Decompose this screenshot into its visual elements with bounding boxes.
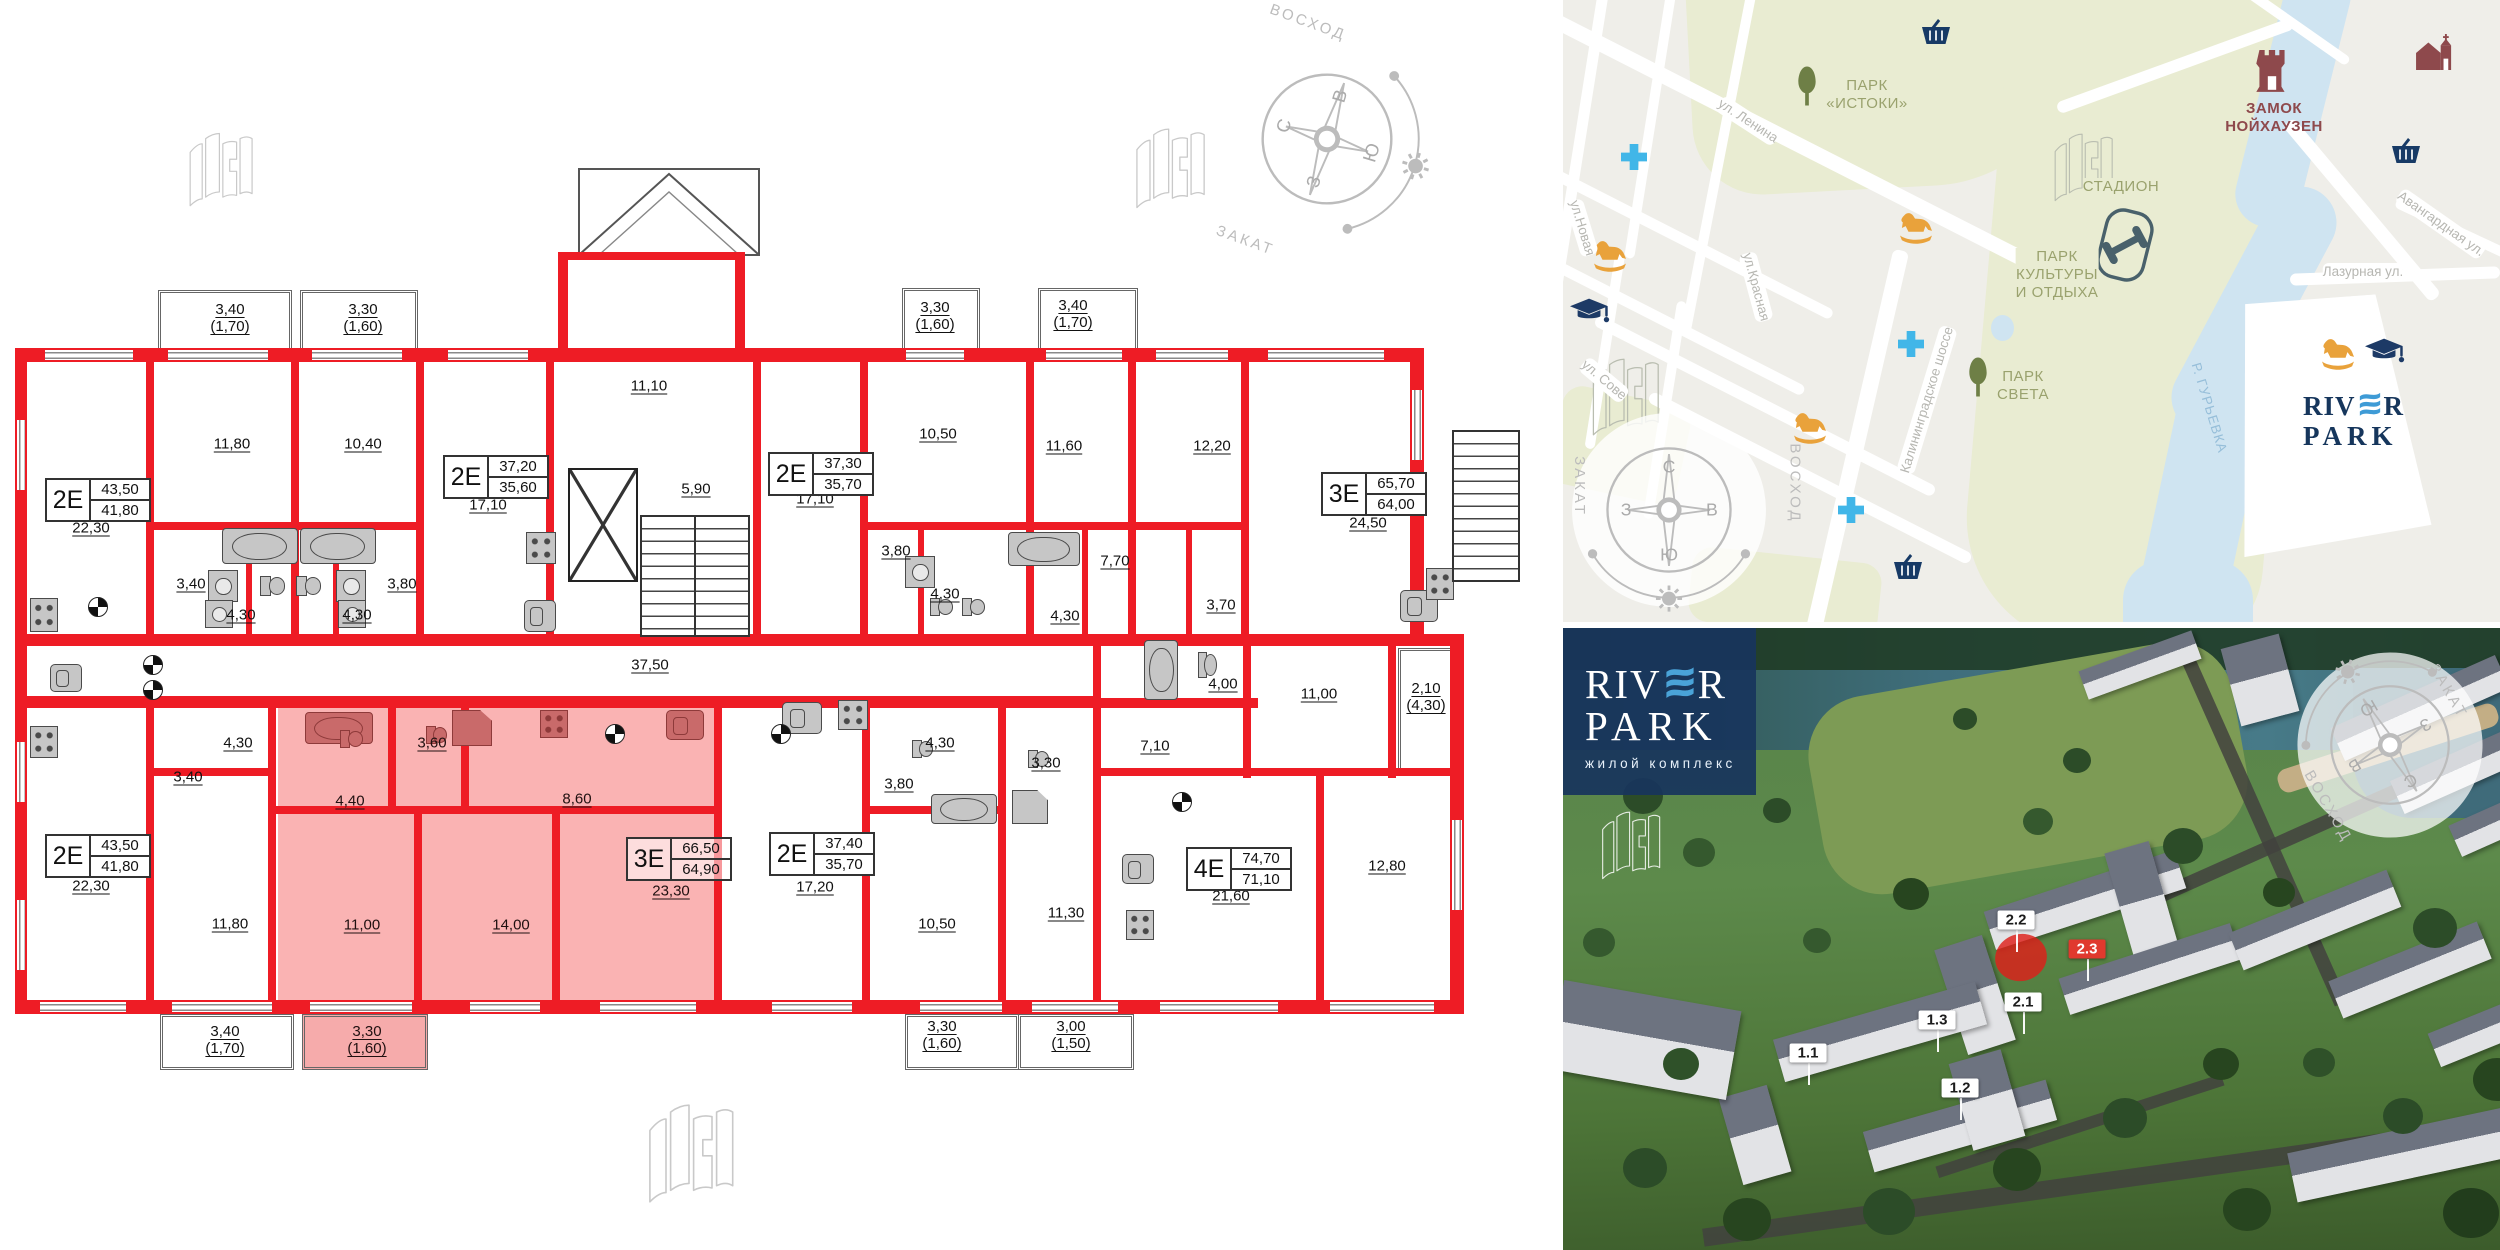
- label-leader-line: [2087, 959, 2089, 981]
- wall-segment: [1243, 644, 1251, 778]
- wall-segment: [860, 348, 868, 646]
- bathtub-basin: [940, 798, 988, 820]
- building-number-label[interactable]: 1.3: [1919, 1011, 1956, 1030]
- apartment-building: [2428, 989, 2500, 1067]
- wall-segment: [753, 348, 761, 646]
- entrance-canopy: [578, 168, 760, 256]
- apartment-type: 2Е: [770, 454, 814, 494]
- toilet-icon: [962, 598, 984, 614]
- map-label: Лазурная ул.: [2323, 263, 2403, 281]
- tree: [2473, 1058, 2500, 1101]
- toilet-bowl: [1204, 654, 1217, 676]
- toilet-icon: [296, 576, 320, 594]
- basin: [673, 717, 687, 735]
- room-area-label: 10,40: [344, 436, 382, 453]
- window: [40, 1002, 126, 1012]
- toilet-bowl: [970, 599, 985, 614]
- window: [1452, 820, 1462, 910]
- room-area-label: 11,00: [344, 917, 380, 934]
- room-area-label: 7,10: [1140, 738, 1169, 755]
- stove-icon: [1126, 910, 1154, 940]
- building-number-label[interactable]: 2.1: [2005, 993, 2042, 1012]
- stadium-icon: [2098, 207, 2152, 283]
- wall-segment: [414, 814, 422, 1008]
- room-area-label: 24,50: [1349, 515, 1387, 532]
- map-label: ЗАМОК НОЙХАУЗЕН: [2225, 100, 2323, 136]
- window: [312, 350, 402, 360]
- school-cap-icon: [2365, 338, 2405, 366]
- room-area-label: 4,30: [223, 735, 252, 752]
- building-outline-sketch: [185, 108, 271, 214]
- shop-basket-icon: [1921, 18, 1951, 46]
- church-icon: [2413, 34, 2457, 70]
- room-area-label: 4,30: [226, 607, 255, 624]
- window: [1160, 1002, 1278, 1012]
- wall-segment: [1388, 644, 1396, 778]
- vent-shaft-icon: [1172, 792, 1192, 812]
- room-area-label: 11,80: [214, 436, 250, 453]
- kitchen-sink-icon: [666, 710, 704, 740]
- building-number-label[interactable]: 2.2: [1998, 911, 2035, 930]
- sink-icon: [336, 570, 366, 602]
- medical-cross-icon: [1838, 497, 1864, 523]
- staircase-icon: [640, 515, 696, 637]
- wall-segment: [388, 708, 396, 814]
- tree-icon: [1965, 357, 1991, 397]
- basin: [56, 670, 68, 687]
- window: [448, 350, 528, 360]
- kitchen-sink-icon: [50, 664, 82, 692]
- bathtub-icon: [222, 528, 298, 564]
- tree: [1763, 798, 1791, 823]
- tree: [1893, 878, 1929, 910]
- apartment-total-area: 74,70: [1232, 849, 1290, 870]
- apartment-total-area: 43,50: [91, 836, 149, 857]
- tree: [2263, 878, 2295, 907]
- room-area-label: 22,30: [72, 520, 110, 537]
- basin: [790, 709, 805, 728]
- photo-road: [1702, 1131, 2398, 1246]
- vent-shaft-icon: [88, 597, 108, 617]
- bathtub-icon: [300, 528, 376, 564]
- apartment-building: [2328, 921, 2491, 1018]
- building-number-label[interactable]: 1.2: [1942, 1079, 1979, 1098]
- label-leader-line: [1937, 1030, 1939, 1052]
- svg-text:С: С: [1663, 457, 1676, 477]
- bathtub-icon: [1144, 640, 1178, 700]
- window: [1032, 1002, 1118, 1012]
- apartment-type: 2Е: [445, 457, 489, 497]
- basin: [912, 564, 929, 582]
- room-area-label: 3,40: [176, 576, 205, 593]
- kitchen-sink-icon: [524, 600, 556, 632]
- balcony-area-label: 3,00 (1,50): [1051, 1018, 1090, 1052]
- staircase-icon: [694, 515, 750, 637]
- room-area-label: 5,90: [681, 481, 710, 498]
- room-area-label: 14,00: [492, 917, 530, 934]
- tree: [2023, 808, 2053, 835]
- apartment-type: 4Е: [1188, 849, 1232, 889]
- bathtub-basin: [232, 533, 287, 559]
- room-area-label: 3,80: [884, 776, 913, 793]
- window: [17, 900, 25, 970]
- window: [906, 350, 964, 360]
- kitchen-sink-icon: [1122, 854, 1154, 884]
- wall-segment: [416, 348, 424, 646]
- apartment-total-area: 43,50: [91, 480, 149, 501]
- wall-segment: [1186, 522, 1192, 640]
- room-area-label: 11,30: [1048, 905, 1084, 922]
- window: [168, 350, 268, 360]
- sink-icon: [208, 570, 238, 602]
- svg-text:В: В: [1328, 87, 1352, 105]
- window: [310, 1002, 412, 1012]
- apartment-living-area: 35,70: [814, 475, 872, 494]
- stove-icon: [838, 700, 868, 730]
- wall-segment: [552, 814, 560, 1008]
- bathtub-basin: [1017, 537, 1069, 562]
- toilet-icon: [260, 576, 284, 594]
- window: [470, 1002, 540, 1012]
- toilet-icon: [1198, 652, 1216, 676]
- wall-segment: [1241, 348, 1249, 646]
- window: [1046, 350, 1122, 360]
- room-area-label: 12,20: [1193, 438, 1231, 455]
- room-area-label: 22,30: [72, 878, 110, 895]
- room-area-label: 4,00: [1208, 676, 1237, 693]
- tree: [1683, 838, 1715, 867]
- room-area-label: 4,30: [930, 586, 959, 603]
- window: [1330, 1002, 1434, 1012]
- logo-waves-icon: [1662, 664, 1698, 704]
- room-area-label: 17,10: [469, 497, 507, 514]
- window: [772, 1002, 852, 1012]
- window: [172, 1002, 272, 1012]
- room-area-label: 10,50: [919, 426, 957, 443]
- tree: [1993, 1148, 2041, 1191]
- apartment-total-area: 37,20: [489, 457, 547, 478]
- room-area-label: 3,80: [387, 576, 416, 593]
- room-area-label: 11,10: [631, 378, 667, 395]
- wall-segment: [1093, 644, 1101, 1008]
- bathtub-basin: [310, 533, 365, 559]
- shop-basket-icon: [2391, 137, 2421, 165]
- logo-waves-icon: [2356, 390, 2384, 423]
- medical-cross-icon: [1621, 144, 1647, 170]
- photo-compass-icon: СВЮЗ: [2285, 640, 2495, 855]
- room-area-label: 23,30: [652, 883, 690, 900]
- map-compass-icon: СВЮЗ: [1563, 400, 1779, 622]
- aerial-photo: 2.22.32.11.31.11.2 RIVR PARK жилой компл…: [1563, 628, 2500, 1250]
- building-number-label[interactable]: 2.3: [2069, 940, 2106, 959]
- room-area-label: 3,70: [1206, 597, 1235, 614]
- label-leader-line: [2016, 930, 2018, 952]
- apartment-info-box[interactable]: 2Е 43,50 41,80: [45, 834, 151, 878]
- tree: [2203, 1048, 2239, 1080]
- toilet-bowl: [305, 577, 321, 594]
- room-area-label: 3,80: [881, 543, 910, 560]
- stove-icon: [30, 598, 58, 632]
- apartment-type: 2Е: [771, 834, 815, 874]
- tree: [2443, 1188, 2499, 1238]
- apartment-type: 2Е: [47, 480, 91, 520]
- wall-segment: [268, 708, 276, 1008]
- wall-segment: [735, 252, 745, 352]
- wall-segment: [558, 252, 745, 260]
- room-area-label: 3,30: [1031, 755, 1060, 772]
- playground-horse-icon: [1897, 212, 1935, 244]
- room-area-label: 12,80: [1368, 858, 1406, 875]
- room-area-label: 11,00: [1301, 686, 1337, 703]
- apartment-living-area: 41,80: [91, 501, 149, 520]
- label-leader-line: [1808, 1063, 1810, 1085]
- wall-segment: [15, 348, 27, 646]
- room-area-label: 4,30: [342, 607, 371, 624]
- building-outline-sketch: [643, 1068, 758, 1216]
- apartment-living-area: 35,70: [815, 855, 873, 874]
- apartment-total-area: 66,50: [672, 839, 730, 860]
- vent-shaft-icon: [143, 655, 163, 675]
- shop-basket-icon: [1893, 553, 1923, 581]
- medical-cross-icon: [1898, 331, 1924, 357]
- playground-horse-icon: [2319, 338, 2357, 370]
- plan-compass-icon: СВЮЗ: [1212, 24, 1442, 259]
- tree: [1953, 708, 1977, 730]
- bathtub-basin: [1149, 648, 1174, 692]
- tree: [2063, 748, 2091, 773]
- apartment-total-area: 37,40: [815, 834, 873, 855]
- apartment-type: 3Е: [628, 839, 672, 879]
- apartment-info-box[interactable]: 2Е 43,50 41,80: [45, 478, 151, 522]
- tree: [1623, 1148, 1667, 1188]
- apartment-living-area: 71,10: [1232, 870, 1290, 889]
- wall-segment: [1026, 348, 1034, 646]
- basin: [530, 607, 542, 626]
- apartment-page: 22,3011,8010,4017,103,404,304,303,8011,1…: [0, 0, 2500, 1250]
- photo-outline-sketch: [1590, 790, 1685, 885]
- tree: [2303, 1048, 2335, 1077]
- tree-icon: [1794, 66, 1820, 106]
- window: [920, 1002, 1002, 1012]
- wall-segment: [1093, 768, 1458, 776]
- river-park-photo-logo: RIVR PARK жилой комплекс: [1563, 628, 1756, 795]
- room-area-label: 11,60: [1046, 438, 1082, 455]
- window: [17, 420, 25, 490]
- sunrise-label: ВОСХОД: [1787, 443, 1804, 523]
- balcony-area-label: 3,30 (1,60): [915, 299, 954, 333]
- shower-icon: [452, 710, 492, 746]
- apartment-building: [1719, 1085, 1792, 1185]
- balcony-area-label: 3,30 (1,60): [347, 1023, 386, 1057]
- room-area-label: 8,60: [562, 791, 591, 808]
- bathtub-icon: [931, 794, 997, 824]
- stove-icon: [540, 710, 568, 738]
- basin: [212, 607, 228, 623]
- toilet-icon: [340, 730, 362, 746]
- apartment-building: [1563, 980, 1741, 1100]
- map-label: Авангардная ул.: [2394, 187, 2488, 260]
- room-area-label: 3,60: [417, 735, 446, 752]
- room-area-label: 4,30: [1050, 608, 1079, 625]
- building-number-label[interactable]: 1.1: [1790, 1044, 1827, 1063]
- svg-text:Ю: Ю: [1660, 544, 1678, 564]
- basin: [215, 578, 232, 596]
- svg-text:Ю: Ю: [1358, 140, 1384, 164]
- river-park-map-logo: RIVR PARK: [2303, 390, 2404, 452]
- apartment-living-area: 35,60: [489, 478, 547, 497]
- external-staircase-icon: [1452, 430, 1520, 582]
- apartment-living-area: 41,80: [91, 857, 149, 876]
- bathtub-icon: [1008, 532, 1080, 566]
- school-cap-icon: [1570, 298, 1610, 326]
- stove-icon: [1426, 568, 1454, 600]
- label-leader-line: [2023, 1012, 2025, 1034]
- svg-text:С: С: [1272, 116, 1296, 135]
- basin: [343, 578, 360, 596]
- tree: [2223, 1188, 2271, 1231]
- wall-segment: [1082, 522, 1088, 640]
- pond: [1991, 315, 2014, 341]
- room-area-label: 4,30: [925, 735, 954, 752]
- sunset-label: ЗАКАТ: [1571, 456, 1588, 517]
- location-map: RIVR PARK ПАРК «ИСТОКИ»ПАРК КУЛЬТУРЫ И О…: [1563, 0, 2500, 622]
- apartment-info-box[interactable]: 2Е 37,20 35,60: [443, 455, 549, 499]
- apartment-info-box[interactable]: 4Е 74,70 71,10: [1186, 847, 1292, 891]
- map-label: ПАРК «ИСТОКИ»: [1826, 77, 1907, 113]
- map-label: СТАДИОН: [2083, 178, 2159, 196]
- balcony-area-label: 3,30 (1,60): [922, 1018, 961, 1052]
- stove-icon: [526, 532, 556, 564]
- wall-segment: [291, 348, 299, 646]
- elevator-shaft-icon: [568, 468, 638, 582]
- toilet-bowl: [269, 577, 285, 594]
- window: [1156, 350, 1228, 360]
- toilet-bowl: [348, 731, 363, 746]
- tree: [1723, 1198, 1771, 1241]
- stove-icon: [30, 726, 58, 758]
- vent-shaft-icon: [143, 680, 163, 700]
- balcony-area-label: 3,40 (1,70): [205, 1023, 244, 1057]
- tree: [1803, 928, 1831, 953]
- playground-horse-icon: [1791, 412, 1829, 444]
- window: [17, 742, 25, 802]
- tree: [2413, 908, 2457, 948]
- tree: [1863, 1188, 1915, 1235]
- svg-text:З: З: [1621, 500, 1632, 520]
- room-area-label: 17,20: [796, 879, 834, 896]
- window: [1268, 350, 1384, 360]
- room-area-label: 4,40: [335, 793, 364, 810]
- tree: [1583, 928, 1615, 957]
- wall-segment: [1316, 772, 1324, 1008]
- apartment-type: 2Е: [47, 836, 91, 876]
- room-area-label: 3,40: [173, 769, 202, 786]
- map-label: ПАРК СВЕТА: [1997, 368, 2049, 404]
- window: [1412, 390, 1422, 460]
- wall-segment: [1100, 698, 1258, 708]
- vent-shaft-icon: [771, 724, 791, 744]
- svg-text:В: В: [1706, 500, 1718, 520]
- balcony-area-label: 3,40 (1,70): [1053, 297, 1092, 331]
- room-area-label: 10,50: [918, 916, 956, 933]
- tree: [2163, 828, 2203, 864]
- apartment-total-area: 37,30: [814, 454, 872, 475]
- floor-plan-panel: 22,3011,8010,4017,103,404,304,303,8011,1…: [0, 0, 1560, 1250]
- river-segment: [2123, 560, 2253, 622]
- basin: [1128, 861, 1140, 879]
- shower-icon: [1012, 790, 1048, 824]
- window: [45, 350, 133, 360]
- label-leader-line: [1960, 1098, 1962, 1120]
- room-area-label: 37,50: [631, 657, 669, 674]
- tree: [2103, 1098, 2147, 1138]
- sink-icon: [905, 556, 935, 588]
- balcony-area-label: 2,10 (4,30): [1406, 680, 1445, 714]
- balcony-area-label: 3,40 (1,70): [210, 301, 249, 335]
- wall-segment: [558, 252, 568, 352]
- apartment-type: 3Е: [1323, 474, 1367, 514]
- apartment-info-box[interactable]: 3Е 66,50 64,90: [626, 837, 732, 881]
- apartment-living-area: 64,90: [672, 860, 730, 879]
- castle-icon: [2256, 50, 2288, 94]
- vent-shaft-icon: [605, 724, 625, 744]
- wall-segment: [15, 696, 1100, 708]
- apartment-info-box[interactable]: 2Е 37,40 35,70: [769, 832, 875, 876]
- wall-segment: [1128, 348, 1136, 646]
- apartment-total-area: 65,70: [1367, 474, 1425, 495]
- wall-segment: [146, 768, 276, 776]
- wall-segment: [998, 708, 1006, 1008]
- window: [600, 1002, 696, 1012]
- apartment-info-box[interactable]: 2Е 37,30 35,70: [768, 452, 874, 496]
- map-label: ПАРК КУЛЬТУРЫ И ОТДЫХА: [2016, 248, 2099, 302]
- room-area-label: 11,80: [212, 916, 248, 933]
- apartment-living-area: 64,00: [1367, 495, 1425, 514]
- basin: [1407, 597, 1421, 616]
- balcony-area-label: 3,30 (1,60): [343, 301, 382, 335]
- apartment-info-box[interactable]: 3Е 65,70 64,00: [1321, 472, 1427, 516]
- room-area-label: 7,70: [1100, 553, 1129, 570]
- tree: [2383, 1098, 2423, 1134]
